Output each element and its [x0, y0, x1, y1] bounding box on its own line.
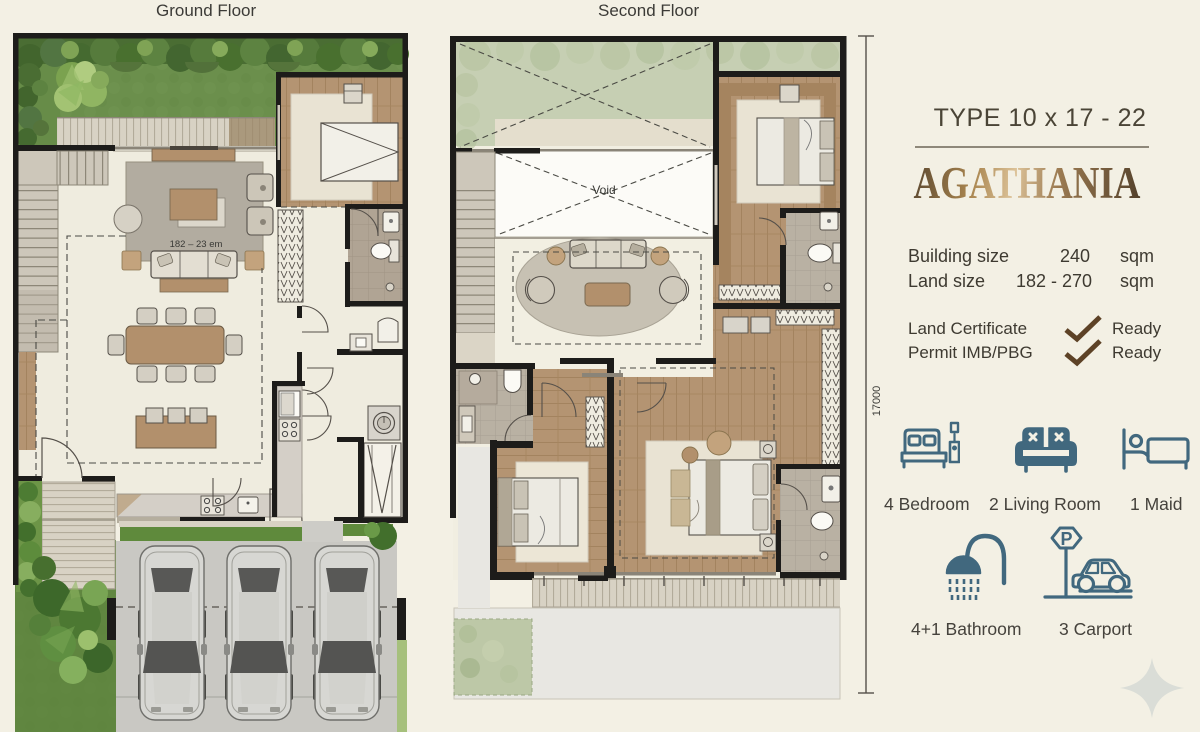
svg-text:Void: Void	[592, 183, 615, 197]
svg-text:182 – 23 em: 182 – 23 em	[170, 239, 223, 250]
svg-text:17000: 17000	[871, 386, 883, 417]
